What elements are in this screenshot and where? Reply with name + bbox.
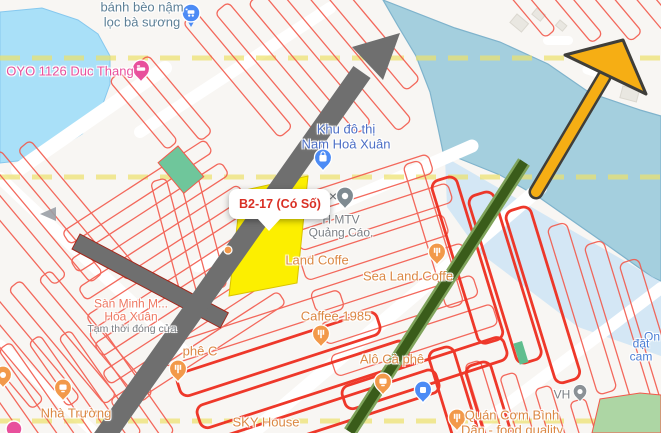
popup-tail [257,218,281,231]
label-sky-house[interactable]: SKY House [233,416,300,431]
park-bottom-right [592,393,661,433]
label-caffee-1985[interactable]: Caffee 1985 [301,310,372,325]
place-pin-small[interactable] [573,384,587,402]
shopping-bag-pin[interactable] [314,149,331,171]
label-khu-do-thi: Khu đô thị Nam Hoà Xuân [302,122,391,151]
label-vh[interactable]: VH [554,388,571,401]
label-banh-beo[interactable]: bánh bèo nậm lọc bà sương [100,0,183,29]
restaurant-pin-caffee[interactable] [312,325,329,347]
popup-title: B2-17 (Có Số) [239,189,321,219]
restaurant-pin-edge[interactable] [0,366,12,388]
san-minh-line2: Hòa Xuân [104,310,157,324]
label-phe-c[interactable]: phê C [183,345,218,360]
label-oyo-hotel[interactable]: OYO 1126 Duc Thang [6,65,133,80]
dot-icon [577,389,582,394]
label-dat-cam[interactable]: đặt cam [630,338,653,365]
label-closed-status: Tạm thời đóng cửa [87,324,176,336]
dot-icon [342,193,348,199]
event-pin-pink[interactable] [6,421,22,433]
label-nha-truong[interactable]: Nhà Trường [41,407,112,422]
poi-dot[interactable] [224,246,232,254]
san-minh-line1: Sàn Minh M... [94,297,168,311]
close-icon[interactable]: × [324,187,342,205]
label-land-coffe[interactable]: Land Coffe [285,254,348,269]
square-icon [420,387,426,393]
label-san-minh[interactable]: Sàn Minh M...Hòa Xuân [94,298,168,325]
restaurant-pin-mid-left[interactable] [169,360,186,382]
dot-icon [0,372,6,378]
map-canvas[interactable]: bánh bèo nậm lọc bà sương OYO 1126 Duc T… [0,0,661,433]
label-alo-ca-phe[interactable]: Alô Cà phê [360,353,424,368]
label-sea-land-coffe[interactable]: Sea Land Coffe [363,270,453,285]
park-parcel-top-left [158,146,204,193]
label-quan-com[interactable]: Quán Cơm Bình Dân - food quality [461,408,563,433]
parcel-info-popup: B2-17 (Có Số) × [229,189,330,219]
